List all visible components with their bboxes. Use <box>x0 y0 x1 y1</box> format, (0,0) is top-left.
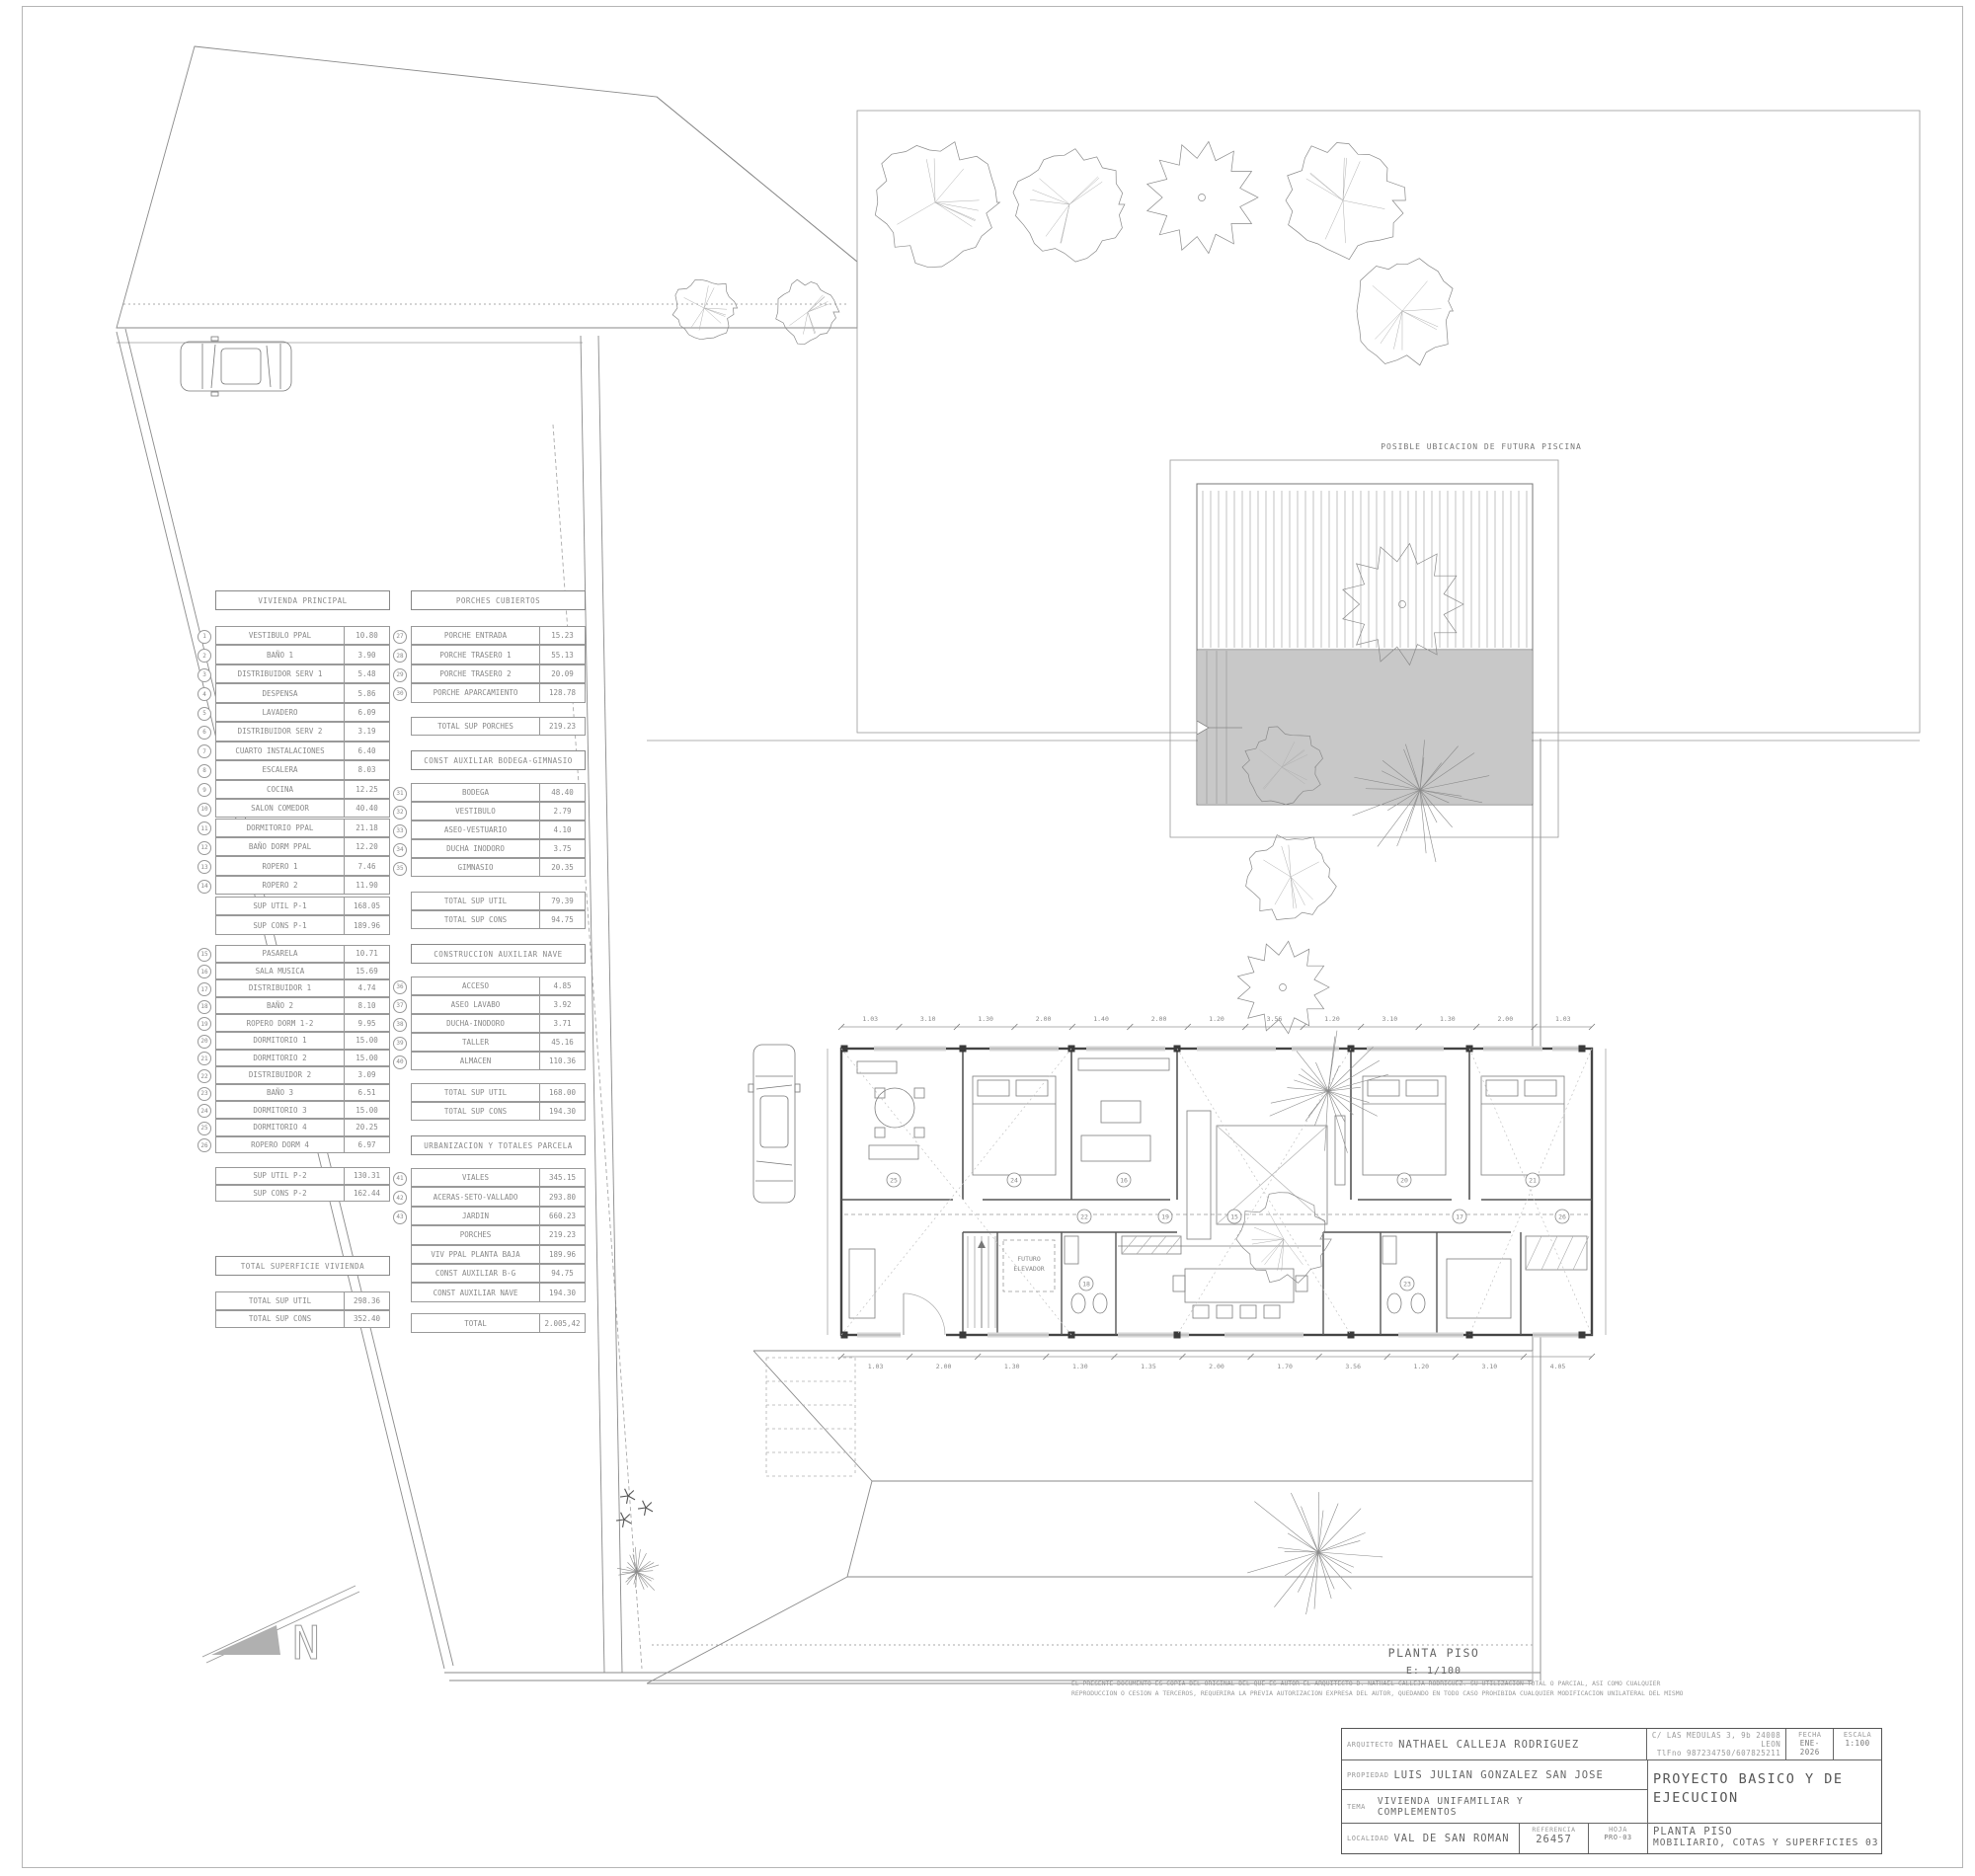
table-row: ASEO LAVABO3.92 <box>411 995 586 1014</box>
tree-icon <box>776 279 839 345</box>
room-label: ROPERO 1 <box>216 857 344 874</box>
area-value: 3.90 <box>344 646 389 663</box>
room-number-badge: 32 <box>393 806 407 820</box>
room-number-badge: 23 <box>197 1087 211 1101</box>
area-value: 20.09 <box>539 665 585 682</box>
room-number-badge: 29 <box>393 668 407 682</box>
area-value: 9.95 <box>344 1015 389 1031</box>
room-number-badge: 17 <box>197 982 211 996</box>
room-label: DORMITORIO 4 <box>216 1120 344 1135</box>
table-title: CONST AUXILIAR BODEGA-GIMNASIO <box>411 750 586 770</box>
area-value: 8.10 <box>344 998 389 1014</box>
table-row: PORCHE TRASERO 155.13 <box>411 645 586 664</box>
table-row: ROPERO 17.46 <box>215 856 390 875</box>
table-row: DORMITORIO 420.25 <box>215 1119 390 1136</box>
table-row: DUCHA-INODORO3.71 <box>411 1014 586 1033</box>
tree-icon <box>1237 941 1329 1033</box>
room-number: 17 <box>1456 1212 1463 1220</box>
table-title: URBANIZACION Y TOTALES PARCELA <box>411 1135 586 1155</box>
carport-roof <box>117 46 857 343</box>
area-value: 10.80 <box>344 627 389 644</box>
table-row: ROPERO DORM 1-29.95 <box>215 1014 390 1032</box>
table-row: DORMITORIO PPAL21.18 <box>215 819 390 837</box>
table-row: ROPERO 211.90 <box>215 876 390 895</box>
tree-icon <box>1357 259 1453 365</box>
plan-scale: E: 1/100 <box>1406 1666 1461 1677</box>
referencia-value: 26457 <box>1525 1834 1583 1845</box>
dimension-label: 2.00 <box>1036 1015 1052 1023</box>
room-number-badge: 31 <box>393 787 407 801</box>
arquitecto-value: NATHAEL CALLEJA RODRIGUEZ <box>1398 1739 1579 1751</box>
tree-icon <box>1286 143 1405 260</box>
room-label: CUARTO INSTALACIONES <box>216 743 344 759</box>
room-label: TOTAL SUP CONS <box>412 1103 539 1120</box>
room-label: TOTAL SUP CONS <box>216 1311 344 1328</box>
room-label: TOTAL SUP UTIL <box>412 1084 539 1101</box>
copyright-disclaimer: EL PRESENTE DOCUMENTO ES COPIA DEL ORIGI… <box>1071 1679 1886 1698</box>
room-label: PORCHE ENTRADA <box>412 627 539 644</box>
tema-label: TEMA <box>1347 1803 1366 1811</box>
room-label: DISTRIBUIDOR 2 <box>216 1067 344 1083</box>
area-value: 15.00 <box>344 1033 389 1049</box>
room-number-badge: 6 <box>197 726 211 740</box>
fecha-label: FECHA <box>1791 1731 1828 1739</box>
room-label: LAVADERO <box>216 704 344 721</box>
area-value: 40.40 <box>344 800 389 817</box>
hoja-value: PRO-03 <box>1594 1834 1642 1841</box>
room-label: PASARELA <box>216 946 344 962</box>
table-row: DORMITORIO 215.00 <box>215 1050 390 1067</box>
tree-icon <box>1147 141 1258 253</box>
room-number: 16 <box>1120 1176 1128 1184</box>
area-value: 6.09 <box>344 704 389 721</box>
room-number-badge: 39 <box>393 1037 407 1051</box>
project-title: PROYECTO BASICO Y DE EJECUCION <box>1653 1771 1844 1806</box>
area-value: 10.71 <box>344 946 389 962</box>
plant-icon <box>616 1489 653 1527</box>
room-label: SALON COMEDOR <box>216 800 344 817</box>
table-total-row: TOTAL SUP UTIL79.39 <box>411 892 586 910</box>
room-number: 26 <box>1558 1212 1566 1220</box>
room-label: PORCHE TRASERO 1 <box>412 646 539 663</box>
dimension-label: 3.10 <box>920 1015 936 1023</box>
table-row: BAÑO 36.51 <box>215 1084 390 1102</box>
dimension-label: 3.56 <box>1345 1363 1361 1370</box>
area-value: 8.03 <box>344 761 389 778</box>
room-number: 18 <box>1082 1280 1090 1288</box>
room-number-badge: 28 <box>393 649 407 663</box>
dimension-label: 1.30 <box>1072 1363 1088 1370</box>
table-title: PORCHES CUBIERTOS <box>411 590 586 610</box>
room-number: 21 <box>1529 1176 1537 1184</box>
room-label: TOTAL SUP PORCHES <box>412 718 539 735</box>
dimension-label: 1.03 <box>868 1363 884 1370</box>
table-row: VIALES345.15 <box>411 1168 586 1187</box>
room-label: SUP UTIL P-2 <box>216 1168 344 1184</box>
room-number-badge: 15 <box>197 948 211 962</box>
room-label: DUCHA-INODORO <box>412 1015 539 1032</box>
table-row: ROPERO DORM 46.97 <box>215 1136 390 1154</box>
plan-title: PLANTA PISO <box>1388 1646 1480 1660</box>
garden-trees <box>467 141 1489 1614</box>
room-label: JARDIN <box>412 1208 539 1224</box>
north-arrow-icon: N <box>202 1586 359 1670</box>
table-row: ESCALERA8.03 <box>215 760 390 779</box>
room-number-badge: 5 <box>197 707 211 721</box>
car-icon <box>749 1045 800 1203</box>
room-label: ACCESO <box>412 977 539 994</box>
lower-roof <box>647 1351 1533 1683</box>
room-label: ROPERO 2 <box>216 877 344 894</box>
dimension-label: 1.30 <box>978 1015 993 1023</box>
propiedad-value: LUIS JULIAN GONZALEZ SAN JOSE <box>1393 1769 1603 1781</box>
room-label: ROPERO DORM 1-2 <box>216 1015 344 1031</box>
table-row: CUARTO INSTALACIONES6.40 <box>215 742 390 760</box>
dimension-label: 3.10 <box>1382 1015 1398 1023</box>
table-row: BODEGA48.40 <box>411 783 586 802</box>
tema-value: VIVIENDA UNIFAMILIAR Y <box>1378 1796 1524 1807</box>
room-number-badge: 22 <box>197 1069 211 1083</box>
escala-label: ESCALA <box>1839 1731 1876 1739</box>
table-row: ALMACEN110.36 <box>411 1052 586 1070</box>
room-number-badge: 35 <box>393 862 407 876</box>
area-value: 15.00 <box>344 1102 389 1118</box>
tree-icon <box>617 1547 659 1591</box>
hoja-label: HOJA <box>1594 1826 1642 1834</box>
table-total-row: TOTAL SUP CONS352.40 <box>215 1310 390 1329</box>
area-value: 3.09 <box>344 1067 389 1083</box>
tree-icon <box>1247 1492 1382 1614</box>
table-row: SALA MUSICA15.69 <box>215 963 390 980</box>
table-row: DORMITORIO 115.00 <box>215 1032 390 1050</box>
area-value: 94.75 <box>539 1265 585 1282</box>
room-label: VIV PPAL PLANTA BAJA <box>412 1246 539 1263</box>
table-row: JARDIN660.23 <box>411 1207 586 1225</box>
site-plan-drawing: POSIBLE UBICACION DE FUTURA PISCINA <box>0 0 1975 1876</box>
room-label: ROPERO DORM 4 <box>216 1137 344 1153</box>
room-label: TOTAL SUP CONS <box>412 911 539 928</box>
room-label: ACERAS-SETO-VALLADO <box>412 1188 539 1205</box>
area-value: 55.13 <box>539 646 585 663</box>
area-value: 4.10 <box>539 821 585 838</box>
room-label: VESTIBULO <box>412 803 539 820</box>
room-label: DISTRIBUIDOR SERV 1 <box>216 665 344 682</box>
room-label: TOTAL SUP UTIL <box>216 1292 344 1309</box>
area-value: 20.35 <box>539 859 585 876</box>
area-value: 130.31 <box>344 1168 389 1184</box>
area-value: 345.15 <box>539 1169 585 1186</box>
room-label: DISTRIBUIDOR 1 <box>216 980 344 996</box>
area-value: 293.80 <box>539 1188 585 1205</box>
area-value: 189.96 <box>539 1246 585 1263</box>
localidad-value: VAL DE SAN ROMAN <box>1393 1833 1509 1844</box>
table-row: CONST AUXILIAR NAVE194.30 <box>411 1283 586 1301</box>
room-label: SUP CONS P-1 <box>216 916 344 933</box>
table-total-row: TOTAL SUP CONS94.75 <box>411 910 586 929</box>
area-value: 11.90 <box>344 877 389 894</box>
dimension-label: 2.00 <box>1151 1015 1167 1023</box>
area-value: 79.39 <box>539 893 585 909</box>
table-row: PORCHE APARCAMIENTO128.78 <box>411 683 586 702</box>
room-label: GIMNASIO <box>412 859 539 876</box>
area-value: 3.71 <box>539 1015 585 1032</box>
table-row: DISTRIBUIDOR 23.09 <box>215 1066 390 1084</box>
room-number: 23 <box>1403 1280 1411 1288</box>
area-value: 189.96 <box>344 916 389 933</box>
room-label: TOTAL <box>412 1314 539 1332</box>
table-total-row: TOTAL SUP PORCHES219.23 <box>411 717 586 736</box>
room-label: COCINA <box>216 781 344 798</box>
area-value: 5.86 <box>344 684 389 701</box>
area-value: 3.19 <box>344 723 389 740</box>
area-value: 352.40 <box>344 1311 389 1328</box>
sheet-title: PLANTA PISO <box>1653 1826 1876 1837</box>
propiedad-label: PROPIEDAD <box>1347 1771 1388 1779</box>
room-label: SUP UTIL P-1 <box>216 898 344 914</box>
table-row: DORMITORIO 315.00 <box>215 1101 390 1119</box>
room-label: SUP CONS P-2 <box>216 1186 344 1202</box>
table-row: PORCHE TRASERO 220.09 <box>411 664 586 683</box>
table-title: TOTAL SUPERFICIE VIVIENDA <box>215 1256 390 1276</box>
room-number-badge: 33 <box>393 824 407 838</box>
table-row: VESTIBULO2.79 <box>411 802 586 821</box>
elevator-label: FUTURO <box>1017 1255 1041 1263</box>
area-value: 219.23 <box>539 1226 585 1243</box>
area-value: 3.75 <box>539 840 585 857</box>
room-label: ASEO-VESTUARIO <box>412 821 539 838</box>
table-row: VIV PPAL PLANTA BAJA189.96 <box>411 1245 586 1264</box>
area-value: 6.51 <box>344 1085 389 1101</box>
area-value: 15.00 <box>344 1051 389 1066</box>
table-total-row: SUP CONS P-1189.96 <box>215 915 390 934</box>
room-label: ALMACEN <box>412 1053 539 1069</box>
area-value: 128.78 <box>539 684 585 701</box>
room-label: PORCHE APARCAMIENTO <box>412 684 539 701</box>
area-value: 298.36 <box>344 1292 389 1309</box>
room-label: DORMITORIO 3 <box>216 1102 344 1118</box>
room-label: DISTRIBUIDOR SERV 2 <box>216 723 344 740</box>
plot-boundary <box>117 111 1920 1681</box>
room-label: PORCHE TRASERO 2 <box>412 665 539 682</box>
room-number-badge: 41 <box>393 1172 407 1186</box>
table-row: BAÑO 13.90 <box>215 645 390 664</box>
area-value: 15.69 <box>344 964 389 979</box>
table-total-row: TOTAL SUP CONS194.30 <box>411 1102 586 1121</box>
dimension-label: 4.05 <box>1550 1363 1566 1370</box>
table-row: DUCHA INODORO3.75 <box>411 839 586 858</box>
area-value: 194.30 <box>539 1284 585 1300</box>
room-number-badge: 34 <box>393 843 407 857</box>
table-total-row: TOTAL SUP UTIL168.00 <box>411 1083 586 1102</box>
north-letter: N <box>292 1616 320 1670</box>
table-row: LAVADERO6.09 <box>215 703 390 722</box>
room-label: DORMITORIO PPAL <box>216 820 344 836</box>
dimension-label: 1.03 <box>1555 1015 1571 1023</box>
area-value: 4.85 <box>539 977 585 994</box>
area-value: 168.05 <box>344 898 389 914</box>
room-number: 20 <box>1400 1176 1408 1184</box>
area-value: 12.25 <box>344 781 389 798</box>
dimension-label: 1.30 <box>1004 1363 1020 1370</box>
table-title: CONSTRUCCION AUXILIAR NAVE <box>411 944 586 964</box>
area-value: 48.40 <box>539 784 585 801</box>
room-number-badge: 18 <box>197 1000 211 1014</box>
room-label: CONST AUXILIAR NAVE <box>412 1284 539 1300</box>
room-number-badge: 42 <box>393 1191 407 1205</box>
area-value: 21.18 <box>344 820 389 836</box>
room-number: 22 <box>1080 1212 1088 1220</box>
area-value: 5.48 <box>344 665 389 682</box>
room-label: SALA MUSICA <box>216 964 344 979</box>
table-total-row: TOTAL SUP UTIL298.36 <box>215 1291 390 1310</box>
room-number-badge: 37 <box>393 999 407 1013</box>
table-total-row: SUP CONS P-2162.44 <box>215 1185 390 1203</box>
area-value: 94.75 <box>539 911 585 928</box>
room-label: BAÑO 1 <box>216 646 344 663</box>
room-label: TALLER <box>412 1034 539 1051</box>
table-row: DISTRIBUIDOR SERV 15.48 <box>215 664 390 683</box>
table-total-row: SUP UTIL P-2130.31 <box>215 1167 390 1185</box>
room-number: 25 <box>890 1176 898 1184</box>
room-label: DUCHA INODORO <box>412 840 539 857</box>
area-value: 194.30 <box>539 1103 585 1120</box>
table-row: PORCHE ENTRADA15.23 <box>411 626 586 645</box>
room-number-badge: 36 <box>393 980 407 994</box>
room-number-badge: 3 <box>197 668 211 682</box>
garden-stair <box>766 1358 855 1476</box>
room-label: VESTIBULO PPAL <box>216 627 344 644</box>
room-label: DESPENSA <box>216 684 344 701</box>
pool-label: POSIBLE UBICACION DE FUTURA PISCINA <box>1381 442 1582 451</box>
dimension-label: 1.20 <box>1413 1363 1429 1370</box>
area-value: 6.40 <box>344 743 389 759</box>
area-value: 6.97 <box>344 1137 389 1153</box>
dimension-label: 1.03 <box>862 1015 878 1023</box>
arquitecto-label: ARQUITECTO <box>1347 1741 1393 1749</box>
table-row: GIMNASIO20.35 <box>411 858 586 877</box>
room-label: BAÑO 3 <box>216 1085 344 1101</box>
area-value: 219.23 <box>539 718 585 735</box>
title-block: ARQUITECTO NATHAEL CALLEJA RODRIGUEZ C/ … <box>1341 1728 1882 1854</box>
table-row: DESPENSA5.86 <box>215 683 390 702</box>
elevator-label: ELEVADOR <box>1013 1265 1044 1273</box>
dimension-label: 3.10 <box>1482 1363 1498 1370</box>
table-row: TALLER45.16 <box>411 1033 586 1052</box>
area-value: 110.36 <box>539 1053 585 1069</box>
table-row: DISTRIBUIDOR 14.74 <box>215 979 390 997</box>
tree-icon <box>672 279 738 340</box>
room-number-badge: 27 <box>393 630 407 644</box>
table-total-row: TOTAL2.005,42 <box>411 1313 586 1333</box>
dimension-label: 1.40 <box>1093 1015 1109 1023</box>
area-value: 12.20 <box>344 838 389 855</box>
room-number-badge: 25 <box>197 1122 211 1135</box>
dimension-label: 1.20 <box>1209 1015 1224 1023</box>
studio-phone: TlFno 987234750/607825211 <box>1652 1749 1780 1758</box>
room-number-badge: 1 <box>197 630 211 644</box>
room-label: BAÑO DORM PPAL <box>216 838 344 855</box>
area-value: 4.74 <box>344 980 389 996</box>
dimension-label: 2.00 <box>936 1363 952 1370</box>
area-value: 2.005,42 <box>539 1314 585 1332</box>
room-label: TOTAL SUP UTIL <box>412 893 539 909</box>
dimension-label: 1.70 <box>1277 1363 1293 1370</box>
table-row: ACCESO4.85 <box>411 977 586 995</box>
table-row: BAÑO DORM PPAL12.20 <box>215 837 390 856</box>
disclaimer-line: EL PRESENTE DOCUMENTO ES COPIA DEL ORIGI… <box>1071 1679 1886 1688</box>
dimension-label: 2.00 <box>1209 1363 1224 1370</box>
room-label: DORMITORIO 2 <box>216 1051 344 1066</box>
table-title: VIVIENDA PRINCIPAL <box>215 590 390 610</box>
sheet-subtitle: MOBILIARIO, COTAS Y SUPERFICIES 03 <box>1653 1837 1876 1848</box>
tema-value: COMPLEMENTOS <box>1378 1807 1524 1818</box>
table-total-row: SUP UTIL P-1168.05 <box>215 897 390 915</box>
escala-value: 1:100 <box>1839 1739 1876 1748</box>
dimension-label: 1.30 <box>1440 1015 1456 1023</box>
dimension-label: 1.20 <box>1324 1015 1340 1023</box>
area-value: 168.00 <box>539 1084 585 1101</box>
disclaimer-line: REPRODUCCION O CESION A TERCEROS, REQUER… <box>1071 1688 1886 1698</box>
room-label: ESCALERA <box>216 761 344 778</box>
table-row: PASARELA10.71 <box>215 945 390 963</box>
referencia-label: REFERENCIA <box>1525 1826 1583 1834</box>
area-value: 3.92 <box>539 996 585 1013</box>
area-value: 162.44 <box>344 1186 389 1202</box>
table-row: PORCHES219.23 <box>411 1225 586 1244</box>
area-value: 20.25 <box>344 1120 389 1135</box>
table-row: BAÑO 28.10 <box>215 997 390 1015</box>
localidad-label: LOCALIDAD <box>1347 1835 1388 1842</box>
studio-address: C/ LAS MEDULAS 3, 9b 24008 LEON <box>1652 1731 1780 1749</box>
room-number-badge: 20 <box>197 1035 211 1049</box>
room-number-badge: 38 <box>393 1018 407 1032</box>
room-number-badge: 4 <box>197 687 211 701</box>
area-value: 2.79 <box>539 803 585 820</box>
room-number: 19 <box>1161 1212 1169 1220</box>
table-row: ASEO-VESTUARIO4.10 <box>411 821 586 839</box>
tree-icon <box>875 142 999 268</box>
fecha-value: ENE-2026 <box>1791 1739 1828 1757</box>
room-label: BAÑO 2 <box>216 998 344 1014</box>
area-value: 660.23 <box>539 1208 585 1224</box>
room-number-badge: 12 <box>197 841 211 855</box>
dimension-label: 3.56 <box>1267 1015 1283 1023</box>
table-row: SALON COMEDOR40.40 <box>215 799 390 818</box>
table-row: DISTRIBUIDOR SERV 23.19 <box>215 722 390 741</box>
room-number: 15 <box>1230 1212 1238 1220</box>
tree-icon <box>1013 149 1125 262</box>
room-number-badge: 8 <box>197 764 211 778</box>
dimension-label: 1.35 <box>1141 1363 1156 1370</box>
drawing-sheet: POSIBLE UBICACION DE FUTURA PISCINA <box>0 0 1975 1876</box>
room-number-badge: 40 <box>393 1055 407 1069</box>
table-row: VESTIBULO PPAL10.80 <box>215 626 390 645</box>
table-row: COCINA12.25 <box>215 780 390 799</box>
room-number: 24 <box>1010 1176 1018 1184</box>
room-number-badge: 10 <box>197 803 211 817</box>
area-value: 45.16 <box>539 1034 585 1051</box>
area-value: 7.46 <box>344 857 389 874</box>
area-value: 15.23 <box>539 627 585 644</box>
room-number-badge: 43 <box>393 1211 407 1224</box>
dimension-label: 2.00 <box>1497 1015 1513 1023</box>
room-label: VIALES <box>412 1169 539 1186</box>
room-label: CONST AUXILIAR B-G <box>412 1265 539 1282</box>
room-number-badge: 30 <box>393 687 407 701</box>
tree-icon <box>1246 835 1337 920</box>
table-row: CONST AUXILIAR B-G94.75 <box>411 1264 586 1283</box>
room-label: PORCHES <box>412 1226 539 1243</box>
